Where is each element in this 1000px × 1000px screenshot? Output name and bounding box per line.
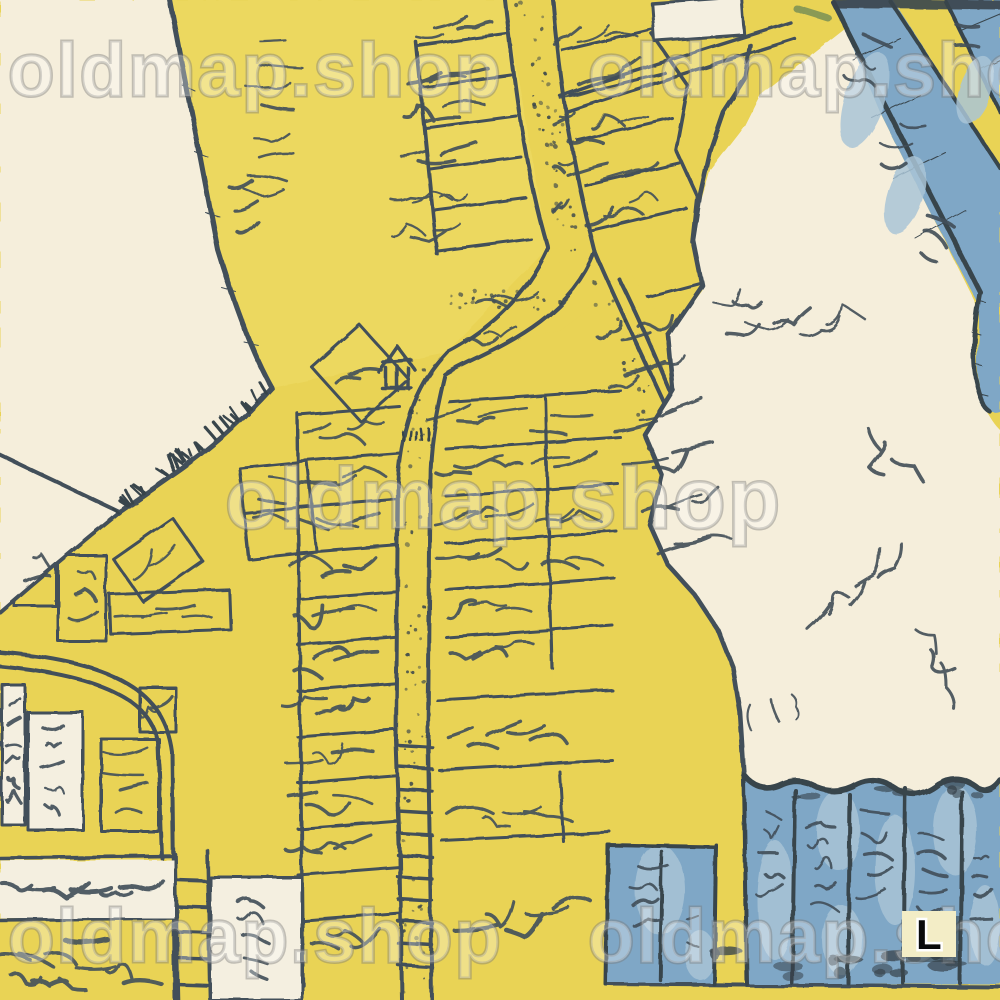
watermark-top-right: oldmap.shop <box>588 28 1000 113</box>
map-image: oldmap.shop oldmap.shop oldmap.shop oldm… <box>0 0 1000 1000</box>
watermark-middle: oldmap.shop <box>225 451 782 547</box>
size-badge-label: L <box>916 911 942 958</box>
size-badge: L <box>902 911 960 962</box>
old-map-screenshot: oldmap.shop oldmap.shop oldmap.shop oldm… <box>0 0 1000 1000</box>
watermark-top-left: oldmap.shop <box>8 28 503 113</box>
watermark-bottom-left: oldmap.shop <box>8 894 503 979</box>
